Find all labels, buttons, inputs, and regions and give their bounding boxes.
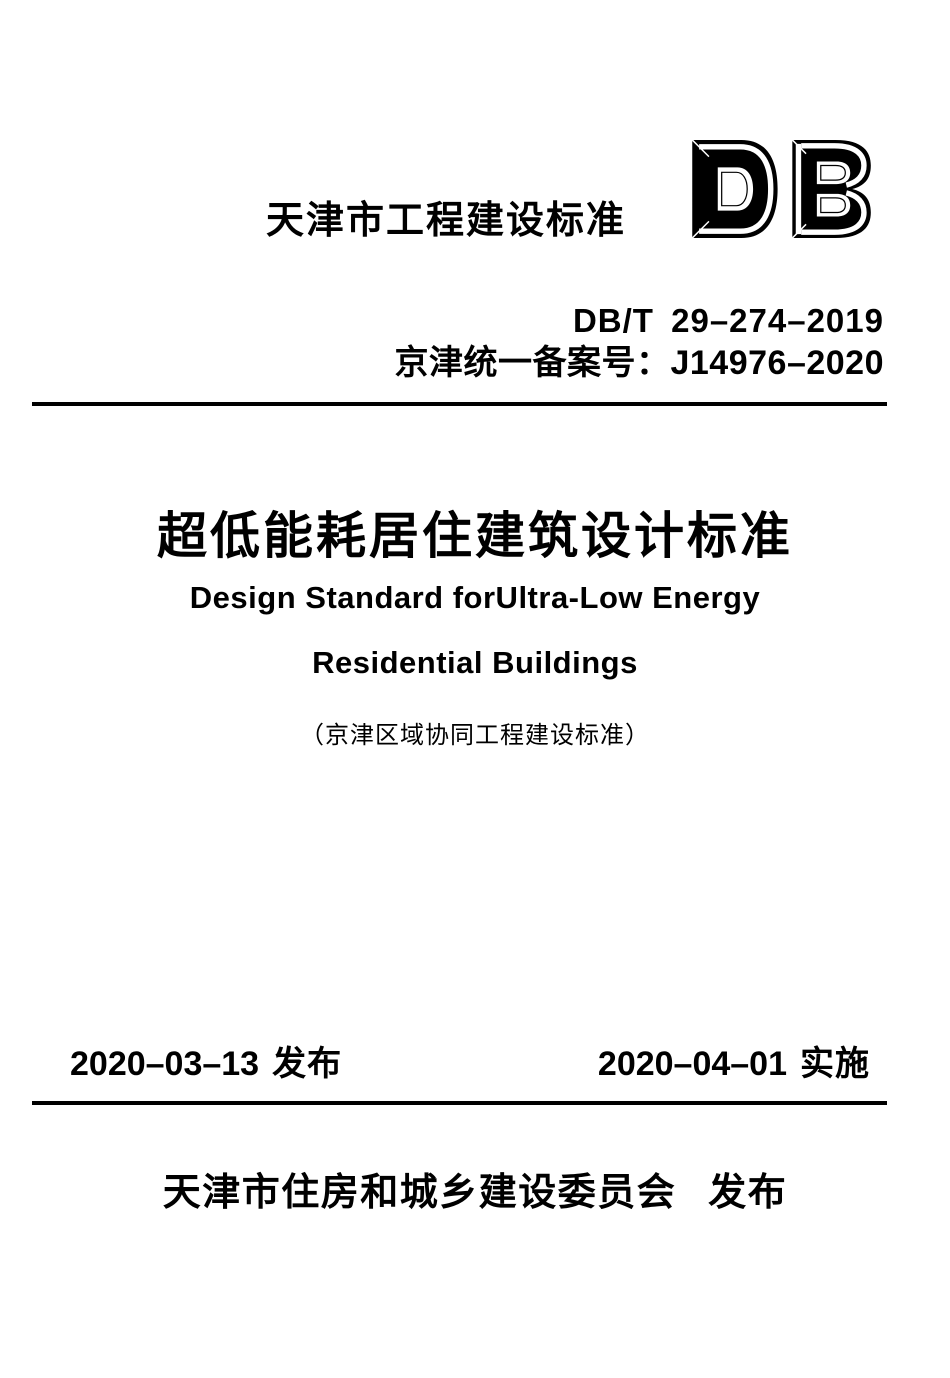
document-title-en-line2: Residential Buildings (0, 645, 950, 681)
db-logo-icon (690, 137, 877, 241)
publisher-line: 天津市住房和城乡建设委员会发布 (0, 1161, 950, 1216)
issue-date-label: 发布 (272, 1045, 342, 1083)
effective-date-label: 实施 (800, 1045, 870, 1083)
publisher-action-label: 发布 (708, 1172, 787, 1214)
document-title-en-line1: Design Standard forUltra-Low Energy (0, 580, 950, 616)
standard-number-block: DB/T 29–274–2019 京津统一备案号：J14976–2020 (394, 300, 884, 384)
standard-cover-page: 天津市工程建设标准 DB/T 29–274–2019 京津统一备案号：J1497… (0, 0, 950, 1378)
issue-date: 2020–03–13 (70, 1045, 259, 1083)
regional-standard-note: （京津区域协同工程建设标准） (0, 715, 950, 750)
filing-number: 京津统一备案号：J14976–2020 (394, 342, 884, 384)
effective-date-line: 2020–04–01实施 (598, 1036, 870, 1085)
standard-code: DB/T 29–274–2019 (394, 300, 884, 342)
top-divider-rule (32, 402, 887, 406)
effective-date: 2020–04–01 (598, 1045, 787, 1083)
bottom-divider-rule (32, 1101, 887, 1105)
standard-category-label: 天津市工程建设标准 (266, 189, 626, 244)
issue-date-line: 2020–03–13发布 (70, 1036, 342, 1085)
publisher-name: 天津市住房和城乡建设委员会 (163, 1172, 677, 1214)
document-title-zh: 超低能耗居住建筑设计标准 (0, 496, 950, 568)
